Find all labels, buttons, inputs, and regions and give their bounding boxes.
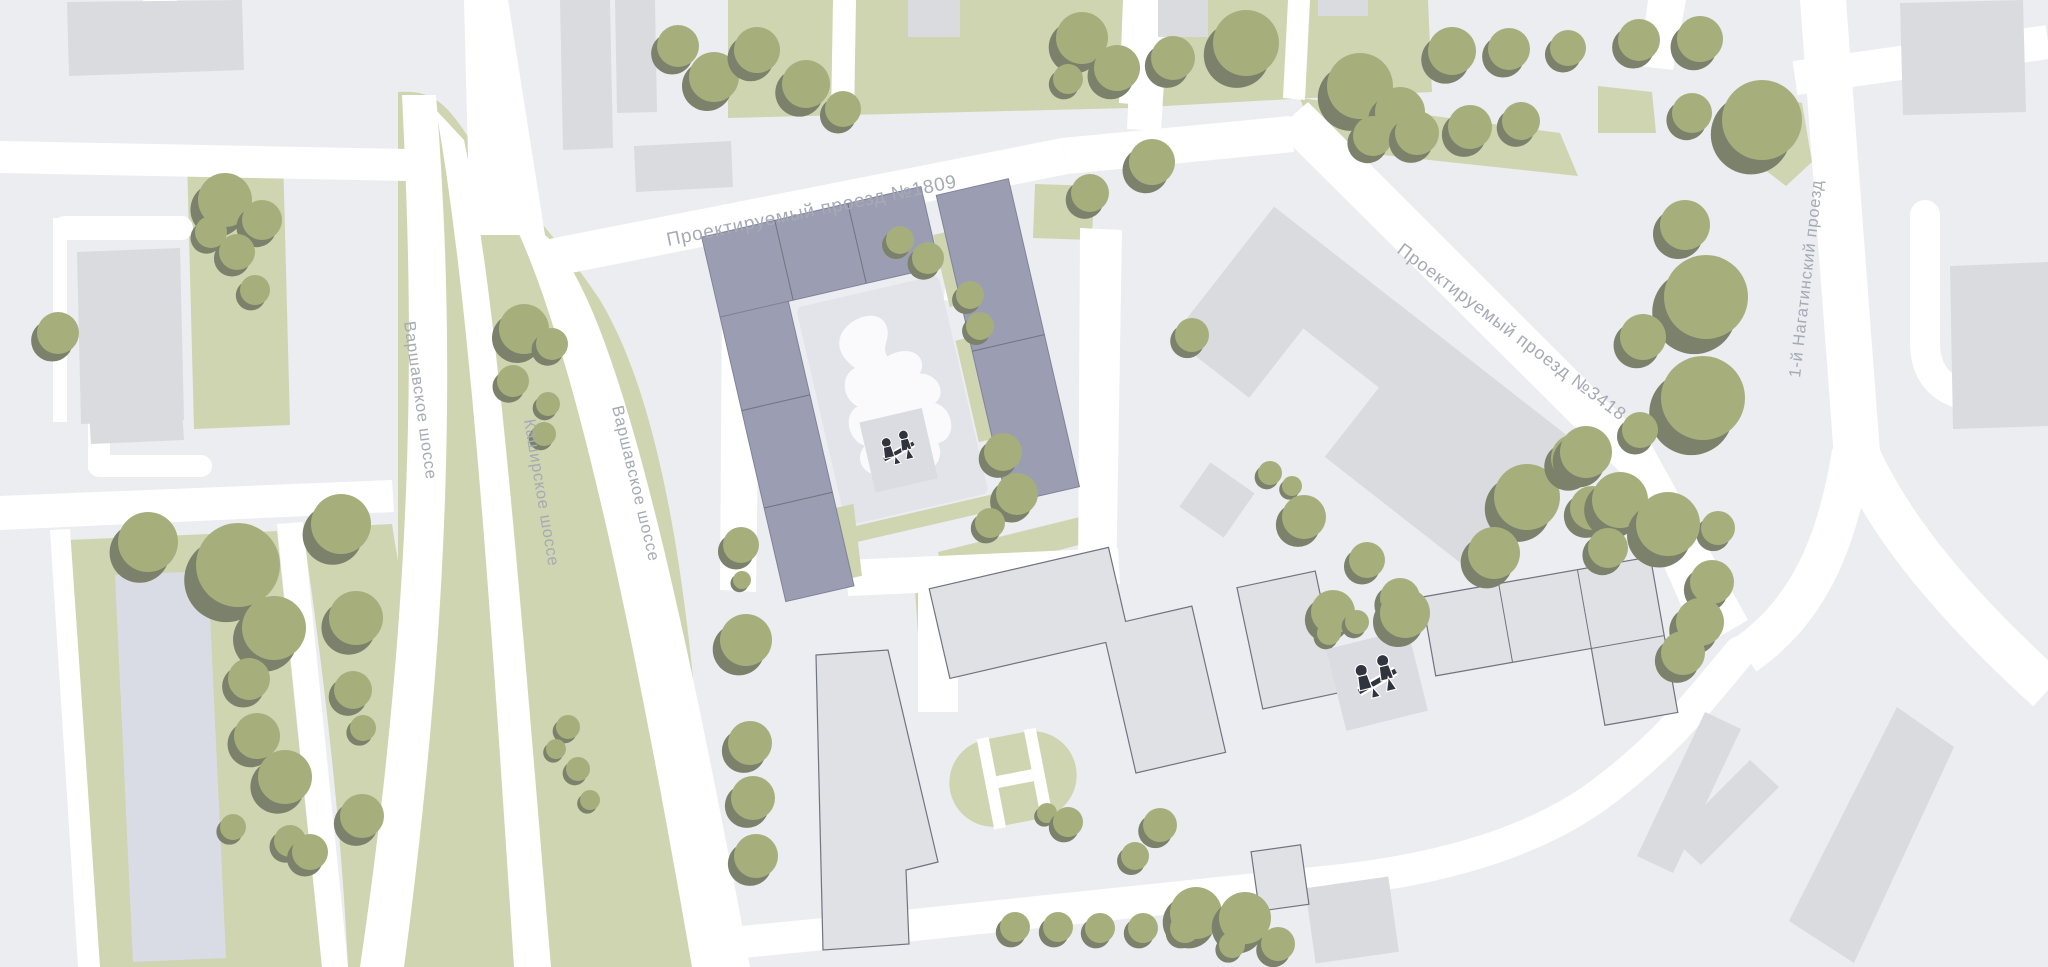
playground-area-2 [1326, 629, 1428, 731]
tree-icon [31, 312, 79, 362]
street-label-nagatinsky: 1-й Нагатинский проезд [1786, 179, 1826, 379]
tree-icon [1545, 30, 1586, 72]
tree-icon [1653, 200, 1710, 259]
tree-icon [1666, 93, 1712, 140]
tree-icon [1117, 842, 1149, 875]
tree-icon [1138, 808, 1177, 848]
tree-icon [1652, 255, 1748, 354]
tree-icon [1344, 542, 1385, 584]
tree-icon [1276, 495, 1326, 547]
tree-icon [725, 776, 775, 828]
row-building [1422, 557, 1678, 753]
tree-icon [1649, 356, 1745, 455]
tree-icon [1066, 174, 1109, 219]
tree-icon [1614, 314, 1666, 368]
tree-icon [1696, 511, 1735, 551]
tree-icon [728, 834, 778, 886]
tree-icon [1482, 28, 1530, 78]
tree-icon [1255, 461, 1282, 489]
tree-icon [722, 721, 772, 773]
tree-icon [713, 614, 772, 675]
site-plan-map[interactable]: Проектируемый проезд №1809 Проектируемый… [0, 0, 2048, 967]
map-canvas: Проектируемый проезд №1809 Проектируемый… [0, 0, 2048, 967]
